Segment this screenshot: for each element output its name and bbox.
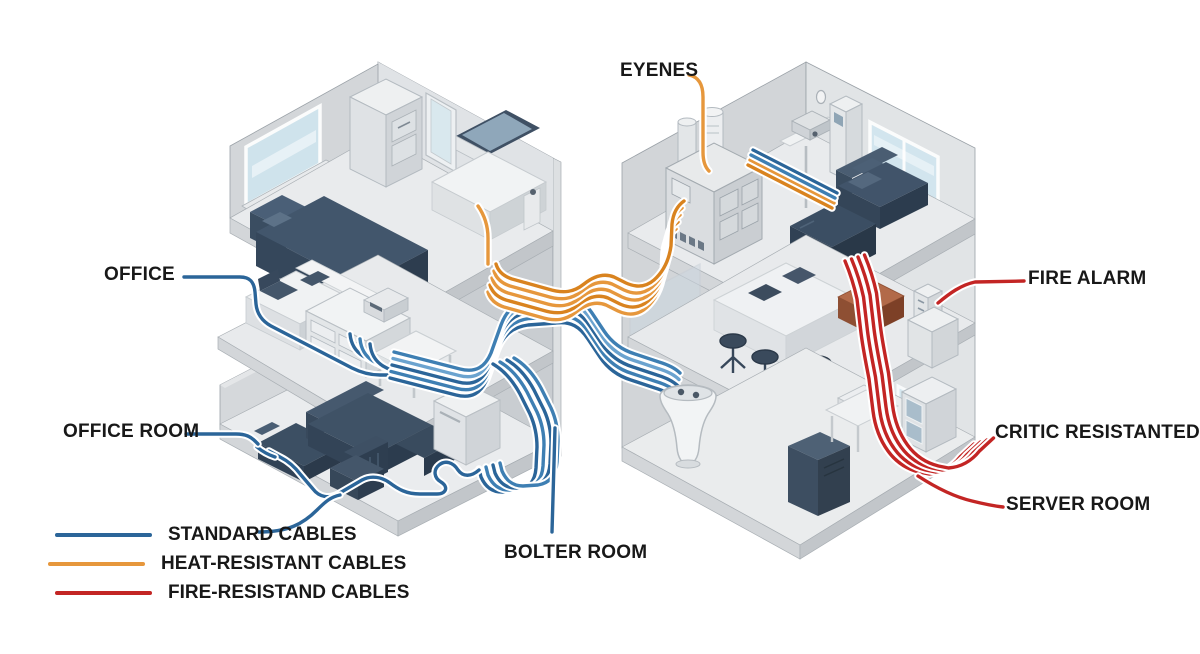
legend-line-standard [55,533,152,536]
wall-oval-fixture [817,91,826,104]
legend-line-fire [55,591,152,594]
label-office-room: OFFICE ROOM [63,422,199,442]
label-bolter-room: BOLTER ROOM [504,543,647,563]
legend-label-fire: FIRE-RESISTAND CABLES [168,582,409,604]
legend-label-standard: STANDARD CABLES [168,524,357,546]
cable-connector [678,389,684,395]
legend-item-fire: FIRE-RESISTAND CABLES [55,582,409,604]
cable-routing-diagram: EYENES OFFICE OFFICE ROOM BOLTER ROOM FI… [0,0,1200,654]
legend-item-standard: STANDARD CABLES [55,524,357,546]
legend-label-heat: HEAT-RESISTANT CABLES [161,553,406,575]
label-eyenes: EYENES [620,61,698,81]
label-fire-alarm: FIRE ALARM [1028,269,1146,289]
label-office: OFFICE [104,265,175,285]
label-critic-resistanted: CRITIC RESISTANTED [995,423,1200,443]
legend-item-heat: HEAT-RESISTANT CABLES [48,553,406,575]
server-cabinet [788,432,850,516]
side-cabinet [908,307,958,368]
cable-connector [693,392,699,398]
legend-line-heat [48,562,145,565]
glass-cupboard [902,377,956,452]
cabinet [350,79,422,187]
building-right [622,62,975,559]
label-server-room: SERVER ROOM [1006,495,1150,515]
cable-casing [918,476,1003,507]
